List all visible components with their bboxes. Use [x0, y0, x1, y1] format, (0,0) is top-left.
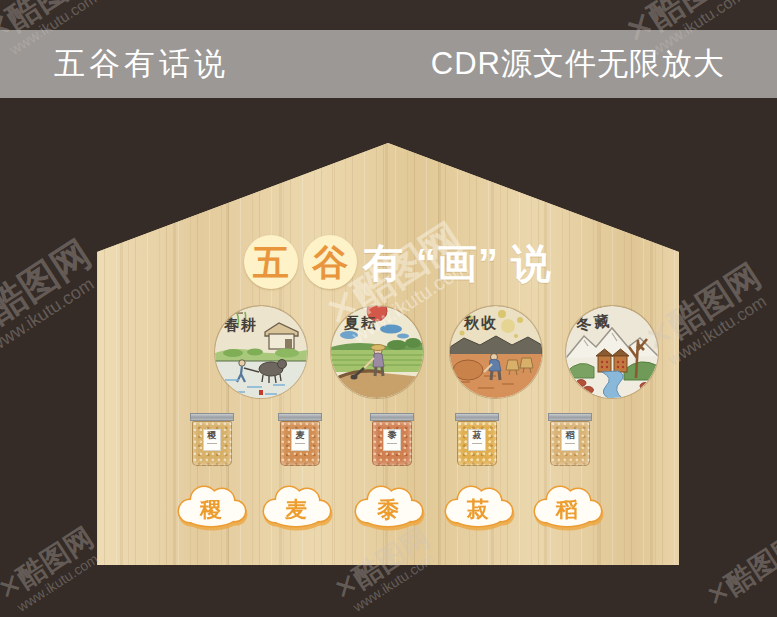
watermark-name: 酷图网	[11, 522, 98, 594]
cloud-shape: 麦	[258, 484, 334, 530]
bag-label: 稻	[561, 429, 579, 451]
grain-bag-dao: 稻	[548, 413, 592, 467]
bag-grains: 菽	[457, 421, 497, 466]
bag-label-line	[207, 443, 217, 444]
cloud-grain-char: 稷	[199, 497, 222, 522]
bag-ziplock-top	[548, 413, 592, 421]
watermark-logo-icon: ✕	[0, 567, 27, 607]
cloud-tag-ji: 稷	[173, 484, 249, 530]
watermark-logo-icon: ✕	[702, 574, 735, 614]
watermark: ✕酷图网	[700, 529, 777, 613]
title-char: 谷	[312, 242, 348, 283]
season-painting-summer: 夏耘	[331, 306, 423, 398]
bag-ziplock-top	[455, 413, 499, 421]
season-painting-spring: 春耕	[215, 306, 307, 398]
cloud-tag-shu2: 菽	[440, 484, 516, 530]
bag-grains: 稻	[550, 421, 590, 466]
bag-label: 麦	[291, 429, 309, 451]
bag-label: 黍	[383, 429, 401, 451]
grain-bag-shu2: 菽	[455, 413, 499, 467]
cloud-grain-char: 麦	[284, 497, 307, 522]
poster-preview: 五谷有话说 CDR源文件无限放大 五 谷 有 “画” 说	[0, 0, 777, 617]
season-label: 夏耘	[343, 314, 378, 331]
title-circle-gu: 谷	[303, 235, 357, 289]
season-painting-winter: 冬藏	[566, 306, 658, 398]
bag-label-line	[387, 443, 397, 444]
header-bar: 五谷有话说 CDR源文件无限放大	[0, 30, 777, 98]
season-label: 春耕	[223, 316, 258, 333]
page-title: 五谷有话说	[54, 30, 229, 98]
cloud-grain-char: 菽	[466, 497, 489, 522]
watermark-url: www.ikutu.com	[9, 548, 107, 617]
watermark-logo-icon: ✕	[330, 567, 363, 607]
board-title-text: 有 “画” 说	[363, 235, 552, 289]
watermark-name: 酷图网	[720, 528, 777, 600]
title-char: 五	[253, 242, 289, 283]
bag-label: 稷	[203, 429, 221, 451]
grain-bag-shu: 黍	[370, 413, 414, 467]
bag-label-char: 稻	[562, 430, 578, 441]
header-note: CDR源文件无限放大	[431, 30, 725, 98]
bag-grains: 黍	[372, 421, 412, 466]
season-painting-autumn: 秋收	[450, 306, 542, 398]
bag-ziplock-top	[278, 413, 322, 421]
bag-ziplock-top	[190, 413, 234, 421]
cloud-grain-char: 稻	[555, 497, 578, 522]
spring-plowing-illustration: 春耕	[215, 306, 307, 398]
watermark-url: www.ikutu.com	[0, 268, 109, 364]
season-label: 秋收	[463, 314, 498, 331]
bag-label-char: 麦	[292, 430, 308, 441]
bag-grains: 麦	[280, 421, 320, 466]
cloud-tag-dao: 稻	[529, 484, 605, 530]
bag-label-line	[472, 443, 482, 444]
wood-house-board: 五 谷 有 “画” 说	[97, 143, 679, 565]
bag-ziplock-top	[370, 413, 414, 421]
bag-label-line	[565, 443, 575, 444]
title-circle-wu: 五	[244, 235, 298, 289]
grain-bag-ji: 稷	[190, 413, 234, 467]
watermark: ✕酷图网 www.ikutu.com	[0, 522, 107, 617]
cloud-shape: 稻	[529, 484, 605, 530]
watermark: ✕酷图网 www.ikutu.com	[0, 233, 109, 363]
cloud-shape: 菽	[440, 484, 516, 530]
cloud-tag-shu: 黍	[350, 484, 426, 530]
bag-grains: 稷	[192, 421, 232, 466]
cloud-shape: 稷	[173, 484, 249, 530]
bag-label-char: 黍	[384, 430, 400, 441]
cloud-shape: 黍	[350, 484, 426, 530]
winter-storage-illustration: 冬藏	[566, 306, 658, 398]
grain-bag-mai: 麦	[278, 413, 322, 467]
autumn-harvest-illustration: 秋收	[450, 306, 542, 398]
bag-label-char: 稷	[204, 430, 220, 441]
bag-label-line	[295, 443, 305, 444]
cloud-tag-mai: 麦	[258, 484, 334, 530]
watermark-name: 酷图网	[0, 232, 98, 329]
summer-weeding-illustration: 夏耘	[331, 306, 423, 398]
top-dark-strip	[0, 0, 777, 30]
bag-label-char: 菽	[469, 430, 485, 441]
cloud-grain-char: 黍	[376, 497, 399, 522]
bag-label: 菽	[468, 429, 486, 451]
